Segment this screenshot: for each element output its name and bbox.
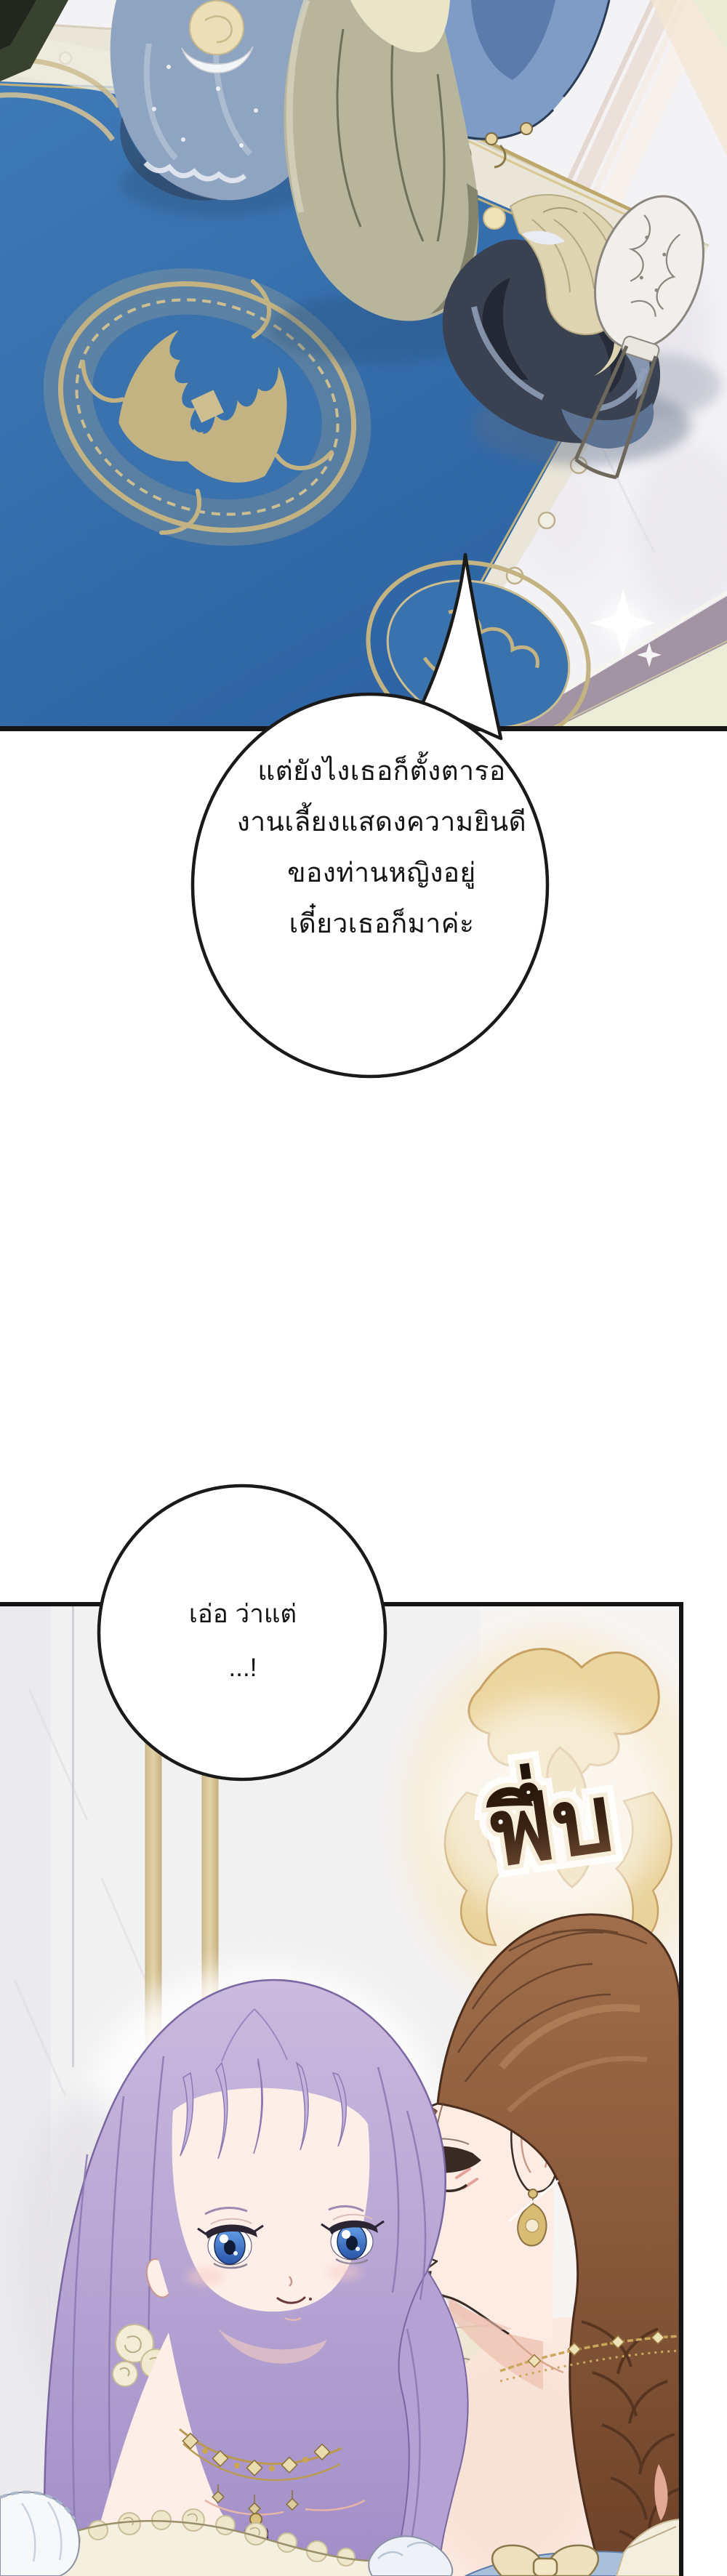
hand [483, 207, 505, 229]
webtoon-page: ฟึ่บ ฟึ่บ [0, 0, 727, 2576]
dialogue-line: งานเลี้ยงแสดงความยินดี [178, 797, 585, 848]
dialogue-text: เอ่อ ว่าแต่ ...! [93, 1587, 393, 1695]
dialogue-line: แต่ยังไงเธอก็ตั้งตารอ [178, 746, 585, 797]
earring-stud [529, 2189, 537, 2198]
speech-bubble-reply: เอ่อ ว่าแต่ ...! [93, 1481, 393, 1784]
blonde-bun-head [190, 1, 244, 55]
dialogue-line: เดี๋ยวเธอก็มาค่ะ [178, 898, 585, 949]
dialogue-line: เอ่อ ว่าแต่ [93, 1587, 393, 1641]
dialogue-text: แต่ยังไงเธอก็ตั้งตารอ งานเลี้ยงแสดงความย… [178, 746, 585, 949]
dialogue-line: ...! [93, 1641, 393, 1695]
panel-border-right [679, 1602, 683, 2576]
wall-seam-line [72, 1602, 74, 2067]
speech-bubble-maid: แต่ยังไงเธอก็ตั้งตารอ งานเลี้ยงแสดงความย… [178, 544, 585, 1085]
dialogue-line: ของท่านหญิงอยู่ [178, 848, 585, 898]
